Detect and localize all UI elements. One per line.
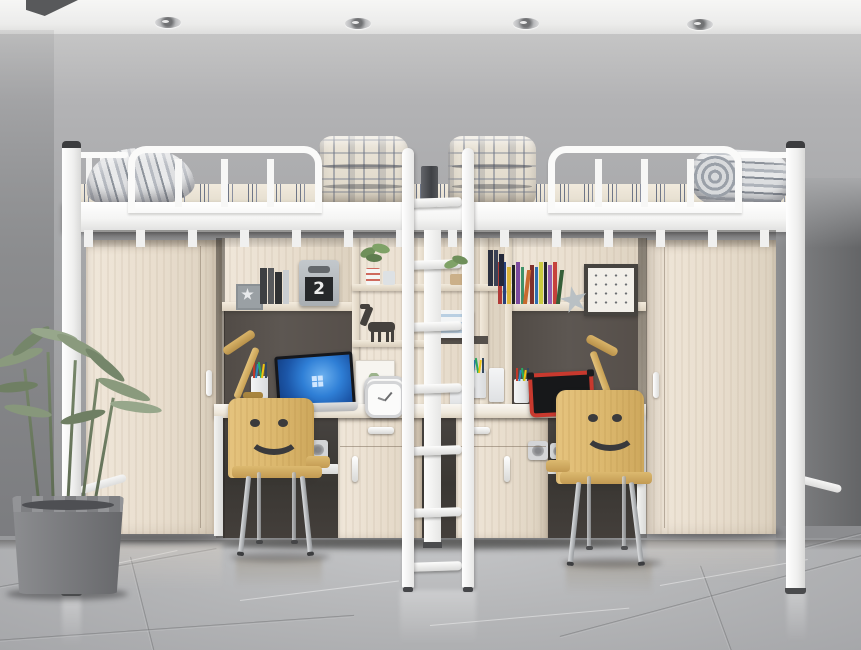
- chair-shadow: [230, 552, 330, 562]
- rail-bar: [595, 159, 602, 207]
- dorm-room-photo: 2: [0, 0, 861, 650]
- chair-right-seat-edge: [546, 460, 570, 472]
- star-picture-frame: [236, 284, 263, 310]
- wardrobe-handle: [653, 372, 659, 398]
- block-handle-slot: [308, 266, 330, 273]
- rail-bar: [641, 159, 648, 207]
- ladder-rung: [408, 197, 462, 208]
- dot-print-frame: [584, 264, 638, 316]
- block-number: 2: [305, 277, 333, 301]
- recessed-light: [687, 19, 713, 30]
- ladder-rung: [408, 321, 462, 332]
- pencil-cup: [514, 379, 529, 403]
- donkey-figurine-head: [360, 304, 370, 309]
- chair-leg: [622, 476, 626, 550]
- left-wall-shadow: [0, 30, 54, 542]
- ladder-rail-right: [462, 148, 474, 588]
- desk-leg: [214, 416, 223, 536]
- alarm-clock: [365, 381, 404, 418]
- post-cap: [786, 141, 805, 148]
- calculator-box: [489, 368, 504, 402]
- chair-shadow: [562, 558, 662, 568]
- wall-outlet: [528, 441, 548, 460]
- bed-post-right: [786, 146, 805, 590]
- post-reflection: [787, 592, 806, 642]
- recessed-light: [513, 18, 539, 29]
- donkey-figurine-leg: [371, 331, 374, 342]
- ladder-rail-left: [402, 148, 414, 588]
- wardrobe-door-seam: [664, 246, 665, 528]
- rail-bar: [687, 159, 694, 207]
- right-wardrobe: [646, 240, 776, 534]
- number-block: 2: [299, 260, 339, 306]
- wardrobe-door-seam: [200, 246, 201, 528]
- ladder-rung: [408, 507, 462, 518]
- center-post-foot: [423, 542, 442, 548]
- center-shelf-books: [488, 250, 505, 286]
- windows-logo-icon: [312, 375, 324, 387]
- chair-leg: [292, 472, 296, 544]
- ceiling: [0, 0, 861, 34]
- chair-leg: [257, 472, 261, 544]
- donkey-figurine-leg: [378, 331, 381, 342]
- cup: [383, 271, 395, 285]
- guard-rail-left: [128, 146, 322, 213]
- rail-bar: [267, 159, 274, 207]
- smiley-smile: [584, 416, 636, 451]
- ladder-rung: [408, 561, 462, 572]
- chair-right-seat: [560, 472, 652, 484]
- chair-leg: [587, 476, 591, 550]
- drawer-handle: [368, 427, 394, 434]
- star-icon: [241, 288, 254, 301]
- plant-pot: [10, 496, 126, 594]
- door-handle: [352, 456, 358, 482]
- recessed-light: [345, 18, 371, 29]
- post-reflection: [62, 596, 81, 646]
- ladder-rung: [408, 383, 462, 394]
- left-shelf-books: [260, 268, 290, 304]
- post-foot: [785, 588, 806, 594]
- striped-cup: [366, 268, 380, 285]
- folded-quilt-left: [318, 136, 408, 206]
- ladder-reflection: [400, 590, 476, 645]
- chair-reflection: [236, 558, 322, 588]
- ladder-rung: [408, 445, 462, 456]
- wardrobe-reflection: [646, 540, 776, 582]
- rail-bar: [221, 159, 228, 207]
- smiley-smile: [248, 420, 300, 455]
- post-cap: [62, 141, 81, 148]
- guard-rail-right: [548, 146, 742, 213]
- shelf-board: [352, 340, 426, 347]
- wardrobe-handle: [206, 370, 212, 396]
- donkey-figurine-leg: [386, 331, 389, 342]
- recessed-light: [155, 17, 181, 28]
- right-shelf-books: [498, 262, 562, 304]
- plant-leaf: [366, 254, 382, 263]
- rail-bar: [175, 159, 182, 207]
- donkey-figurine-leg: [391, 331, 394, 342]
- door-handle: [504, 456, 510, 482]
- pencil-bundle: [253, 362, 268, 378]
